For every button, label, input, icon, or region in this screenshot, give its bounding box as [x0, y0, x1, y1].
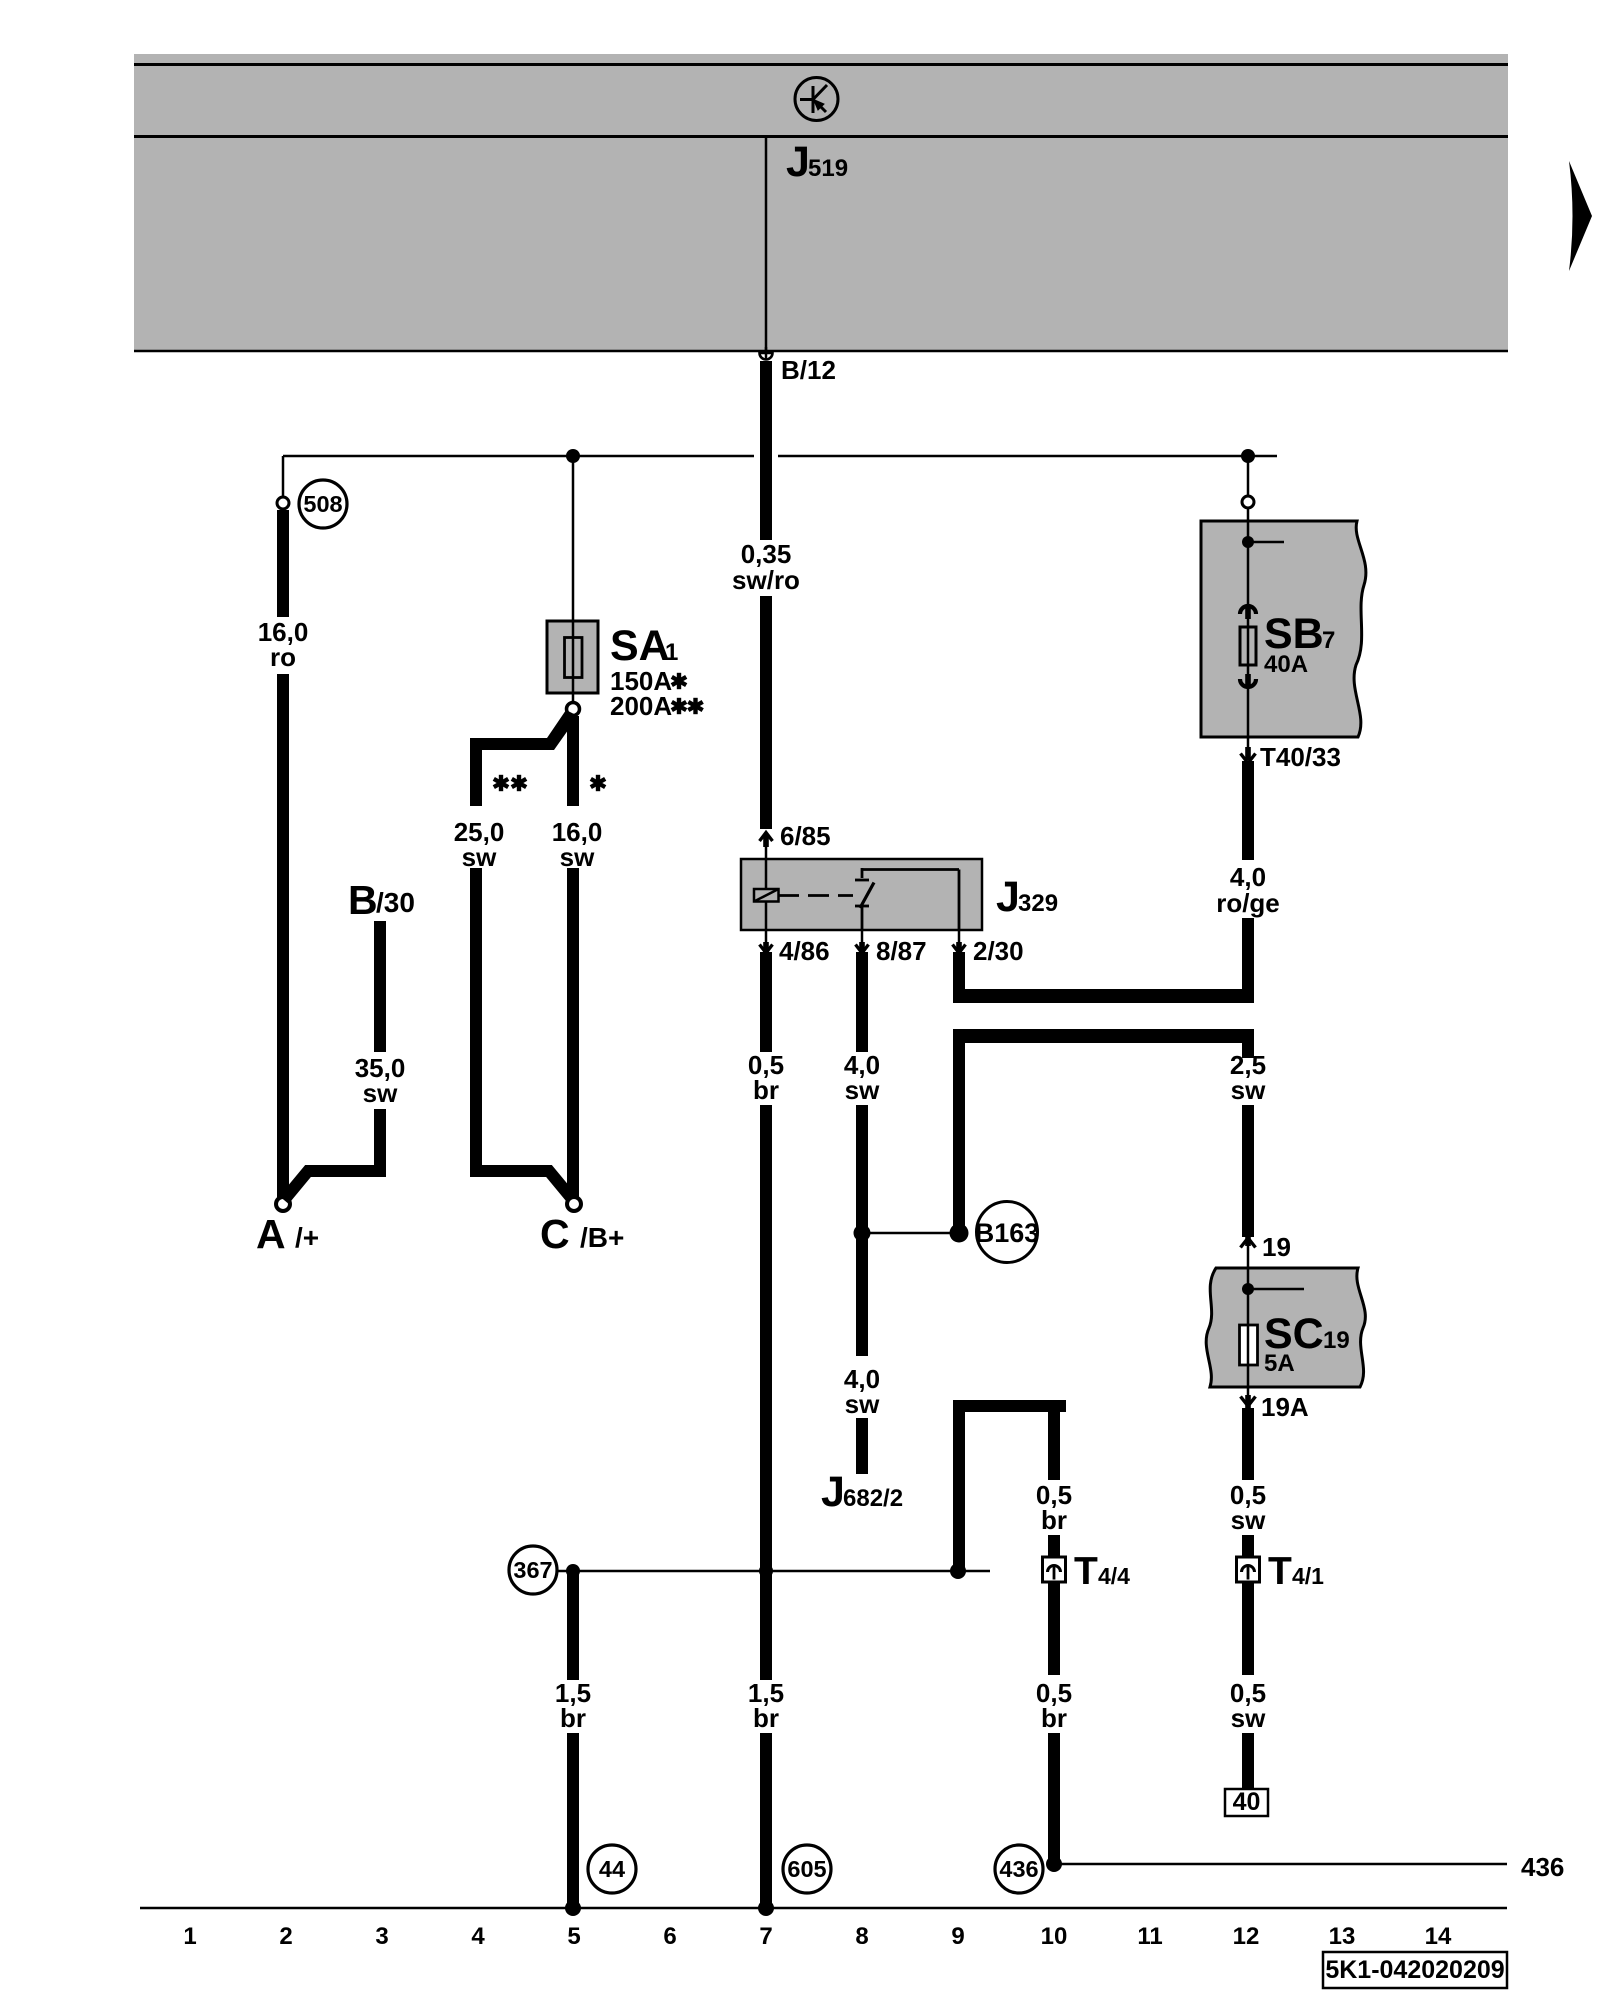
svg-text:ro/ge: ro/ge: [1216, 888, 1280, 918]
svg-text:sw/ro: sw/ro: [732, 565, 800, 595]
svg-text:br: br: [1041, 1703, 1067, 1733]
svg-text:436: 436: [1521, 1852, 1564, 1882]
svg-text:14: 14: [1425, 1923, 1452, 1950]
svg-text:10: 10: [1041, 1923, 1068, 1950]
svg-text:5A: 5A: [1264, 1350, 1295, 1377]
svg-text:4/86: 4/86: [779, 936, 830, 966]
svg-text:4: 4: [471, 1923, 485, 1950]
svg-text:J: J: [786, 138, 810, 186]
svg-text:19: 19: [1323, 1327, 1350, 1354]
svg-text:sw: sw: [1231, 1505, 1266, 1535]
svg-text:C: C: [540, 1211, 570, 1257]
svg-text:T: T: [1268, 1550, 1292, 1593]
svg-text:44: 44: [599, 1856, 625, 1882]
svg-text:T: T: [1074, 1550, 1098, 1593]
svg-text:T40/33: T40/33: [1260, 742, 1341, 772]
svg-text:1: 1: [665, 639, 678, 666]
svg-text:/30: /30: [376, 887, 415, 918]
svg-text:J: J: [996, 873, 1020, 921]
svg-text:5K1-042020209: 5K1-042020209: [1325, 1956, 1504, 1984]
svg-text:B: B: [348, 877, 378, 923]
svg-text:sw: sw: [462, 842, 497, 872]
svg-text:/B+: /B+: [580, 1222, 624, 1253]
svg-text:19: 19: [1262, 1232, 1291, 1262]
svg-text:329: 329: [1018, 890, 1058, 917]
svg-text:12: 12: [1233, 1923, 1260, 1950]
svg-text:sw: sw: [845, 1389, 880, 1419]
svg-text:200A: 200A: [610, 691, 672, 721]
svg-text:br: br: [560, 1703, 586, 1733]
svg-text:SA: SA: [610, 622, 670, 670]
svg-text:ro: ro: [270, 642, 296, 672]
svg-text:sw: sw: [845, 1075, 880, 1105]
svg-text:A: A: [256, 1211, 286, 1257]
svg-text:13: 13: [1329, 1923, 1356, 1950]
svg-text:1: 1: [183, 1923, 196, 1950]
svg-text:sw: sw: [560, 842, 595, 872]
svg-text:3: 3: [375, 1923, 388, 1950]
svg-text:8/87: 8/87: [876, 936, 927, 966]
svg-text:B/12: B/12: [781, 355, 836, 385]
svg-text:sw: sw: [1231, 1075, 1266, 1105]
svg-text:sw: sw: [363, 1078, 398, 1108]
svg-text:J: J: [821, 1468, 845, 1516]
svg-text:19A: 19A: [1261, 1392, 1309, 1422]
svg-text:B163: B163: [975, 1218, 1040, 1248]
svg-text:508: 508: [303, 491, 342, 517]
svg-text:br: br: [1041, 1505, 1067, 1535]
svg-text:2: 2: [279, 1923, 292, 1950]
svg-text:11: 11: [1137, 1923, 1162, 1950]
svg-text:2/30: 2/30: [973, 936, 1024, 966]
svg-text:br: br: [753, 1703, 779, 1733]
svg-text:682/2: 682/2: [843, 1485, 903, 1512]
svg-text:sw: sw: [1231, 1703, 1266, 1733]
svg-text:8: 8: [855, 1923, 868, 1950]
svg-text:9: 9: [951, 1923, 964, 1950]
svg-text:6: 6: [663, 1923, 676, 1950]
svg-text:40: 40: [1233, 1788, 1261, 1816]
svg-text:367: 367: [513, 1557, 552, 1583]
svg-text:7: 7: [759, 1923, 772, 1950]
svg-text:7: 7: [1322, 627, 1335, 654]
svg-text:br: br: [753, 1075, 779, 1105]
svg-text:436: 436: [999, 1856, 1038, 1882]
svg-text:4/1: 4/1: [1292, 1563, 1324, 1589]
svg-text:/+: /+: [295, 1222, 319, 1253]
svg-text:4/4: 4/4: [1098, 1563, 1130, 1589]
svg-text:519: 519: [808, 155, 848, 182]
svg-text:5: 5: [567, 1923, 580, 1950]
svg-text:40A: 40A: [1264, 651, 1308, 678]
svg-text:605: 605: [787, 1856, 826, 1882]
svg-text:6/85: 6/85: [780, 821, 831, 851]
